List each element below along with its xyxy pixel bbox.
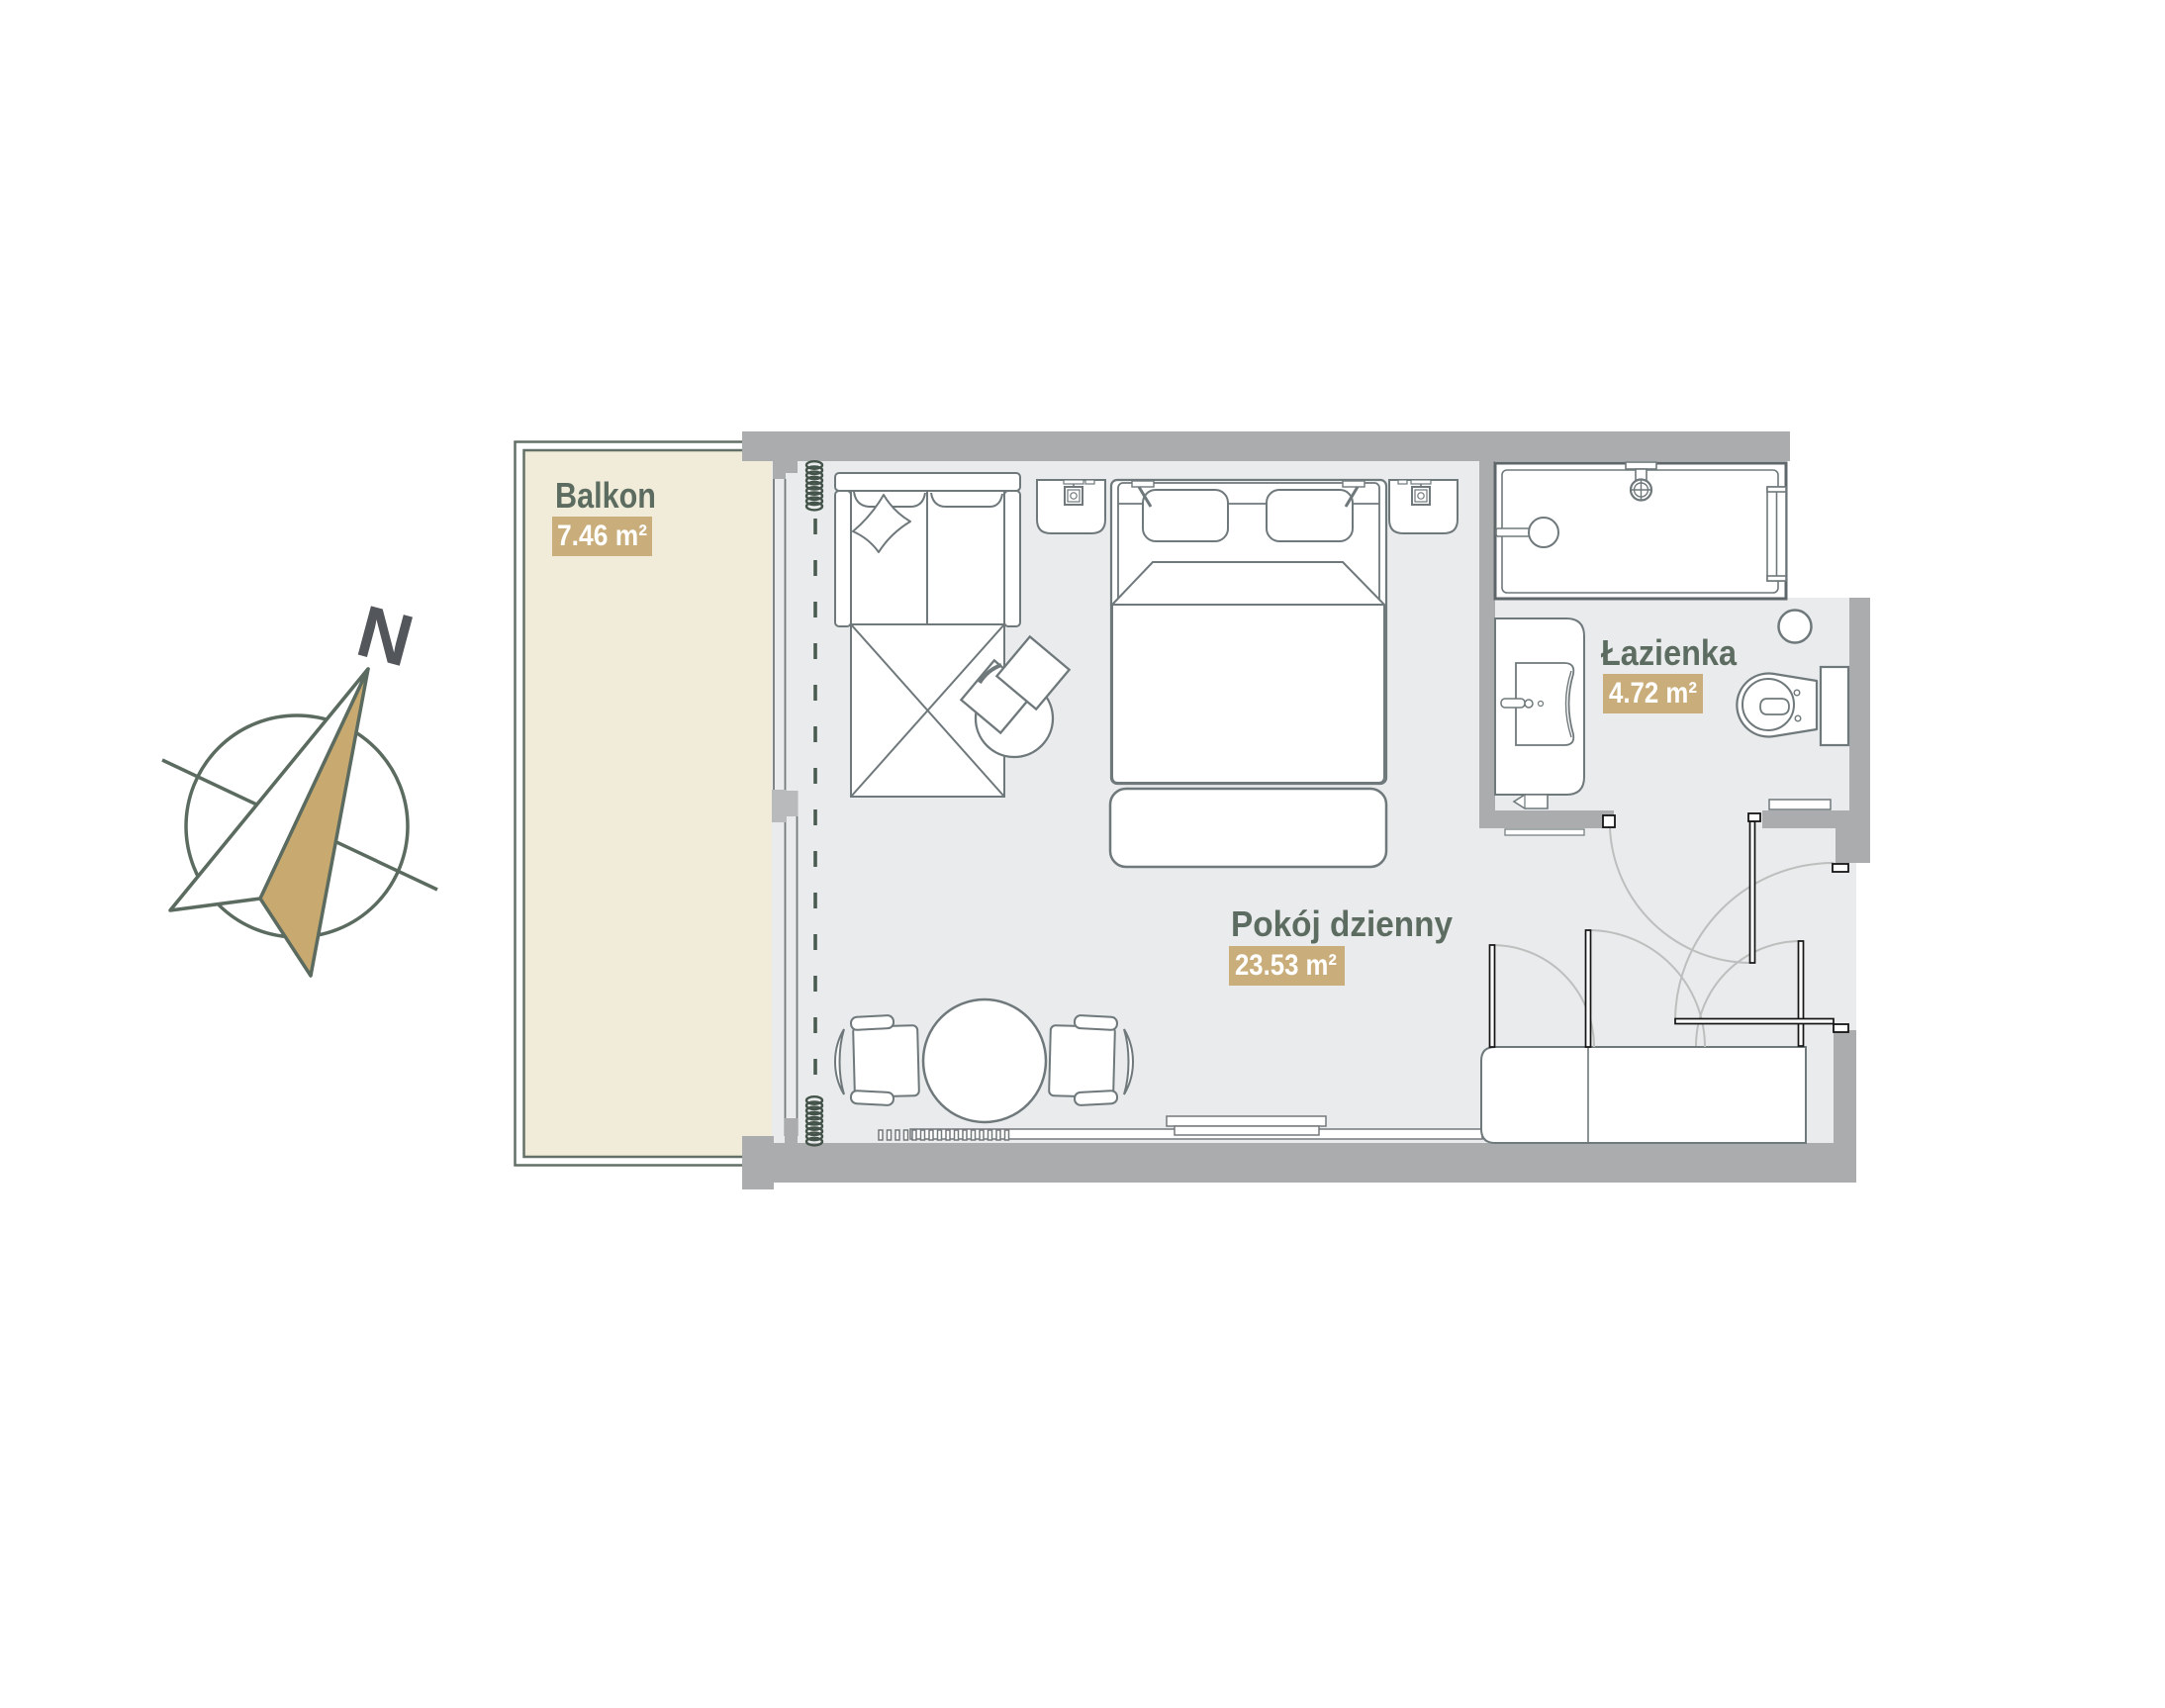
svg-text:N: N	[349, 590, 422, 683]
svg-text:Balkon: Balkon	[555, 475, 656, 516]
svg-text:Pokój dzienny: Pokój dzienny	[1231, 903, 1453, 944]
svg-text:4.72 m²: 4.72 m²	[1609, 677, 1697, 710]
svg-text:7.46 m²: 7.46 m²	[557, 520, 647, 552]
svg-text:23.53 m²: 23.53 m²	[1235, 949, 1337, 982]
svg-text:Łazienka: Łazienka	[1601, 632, 1738, 673]
